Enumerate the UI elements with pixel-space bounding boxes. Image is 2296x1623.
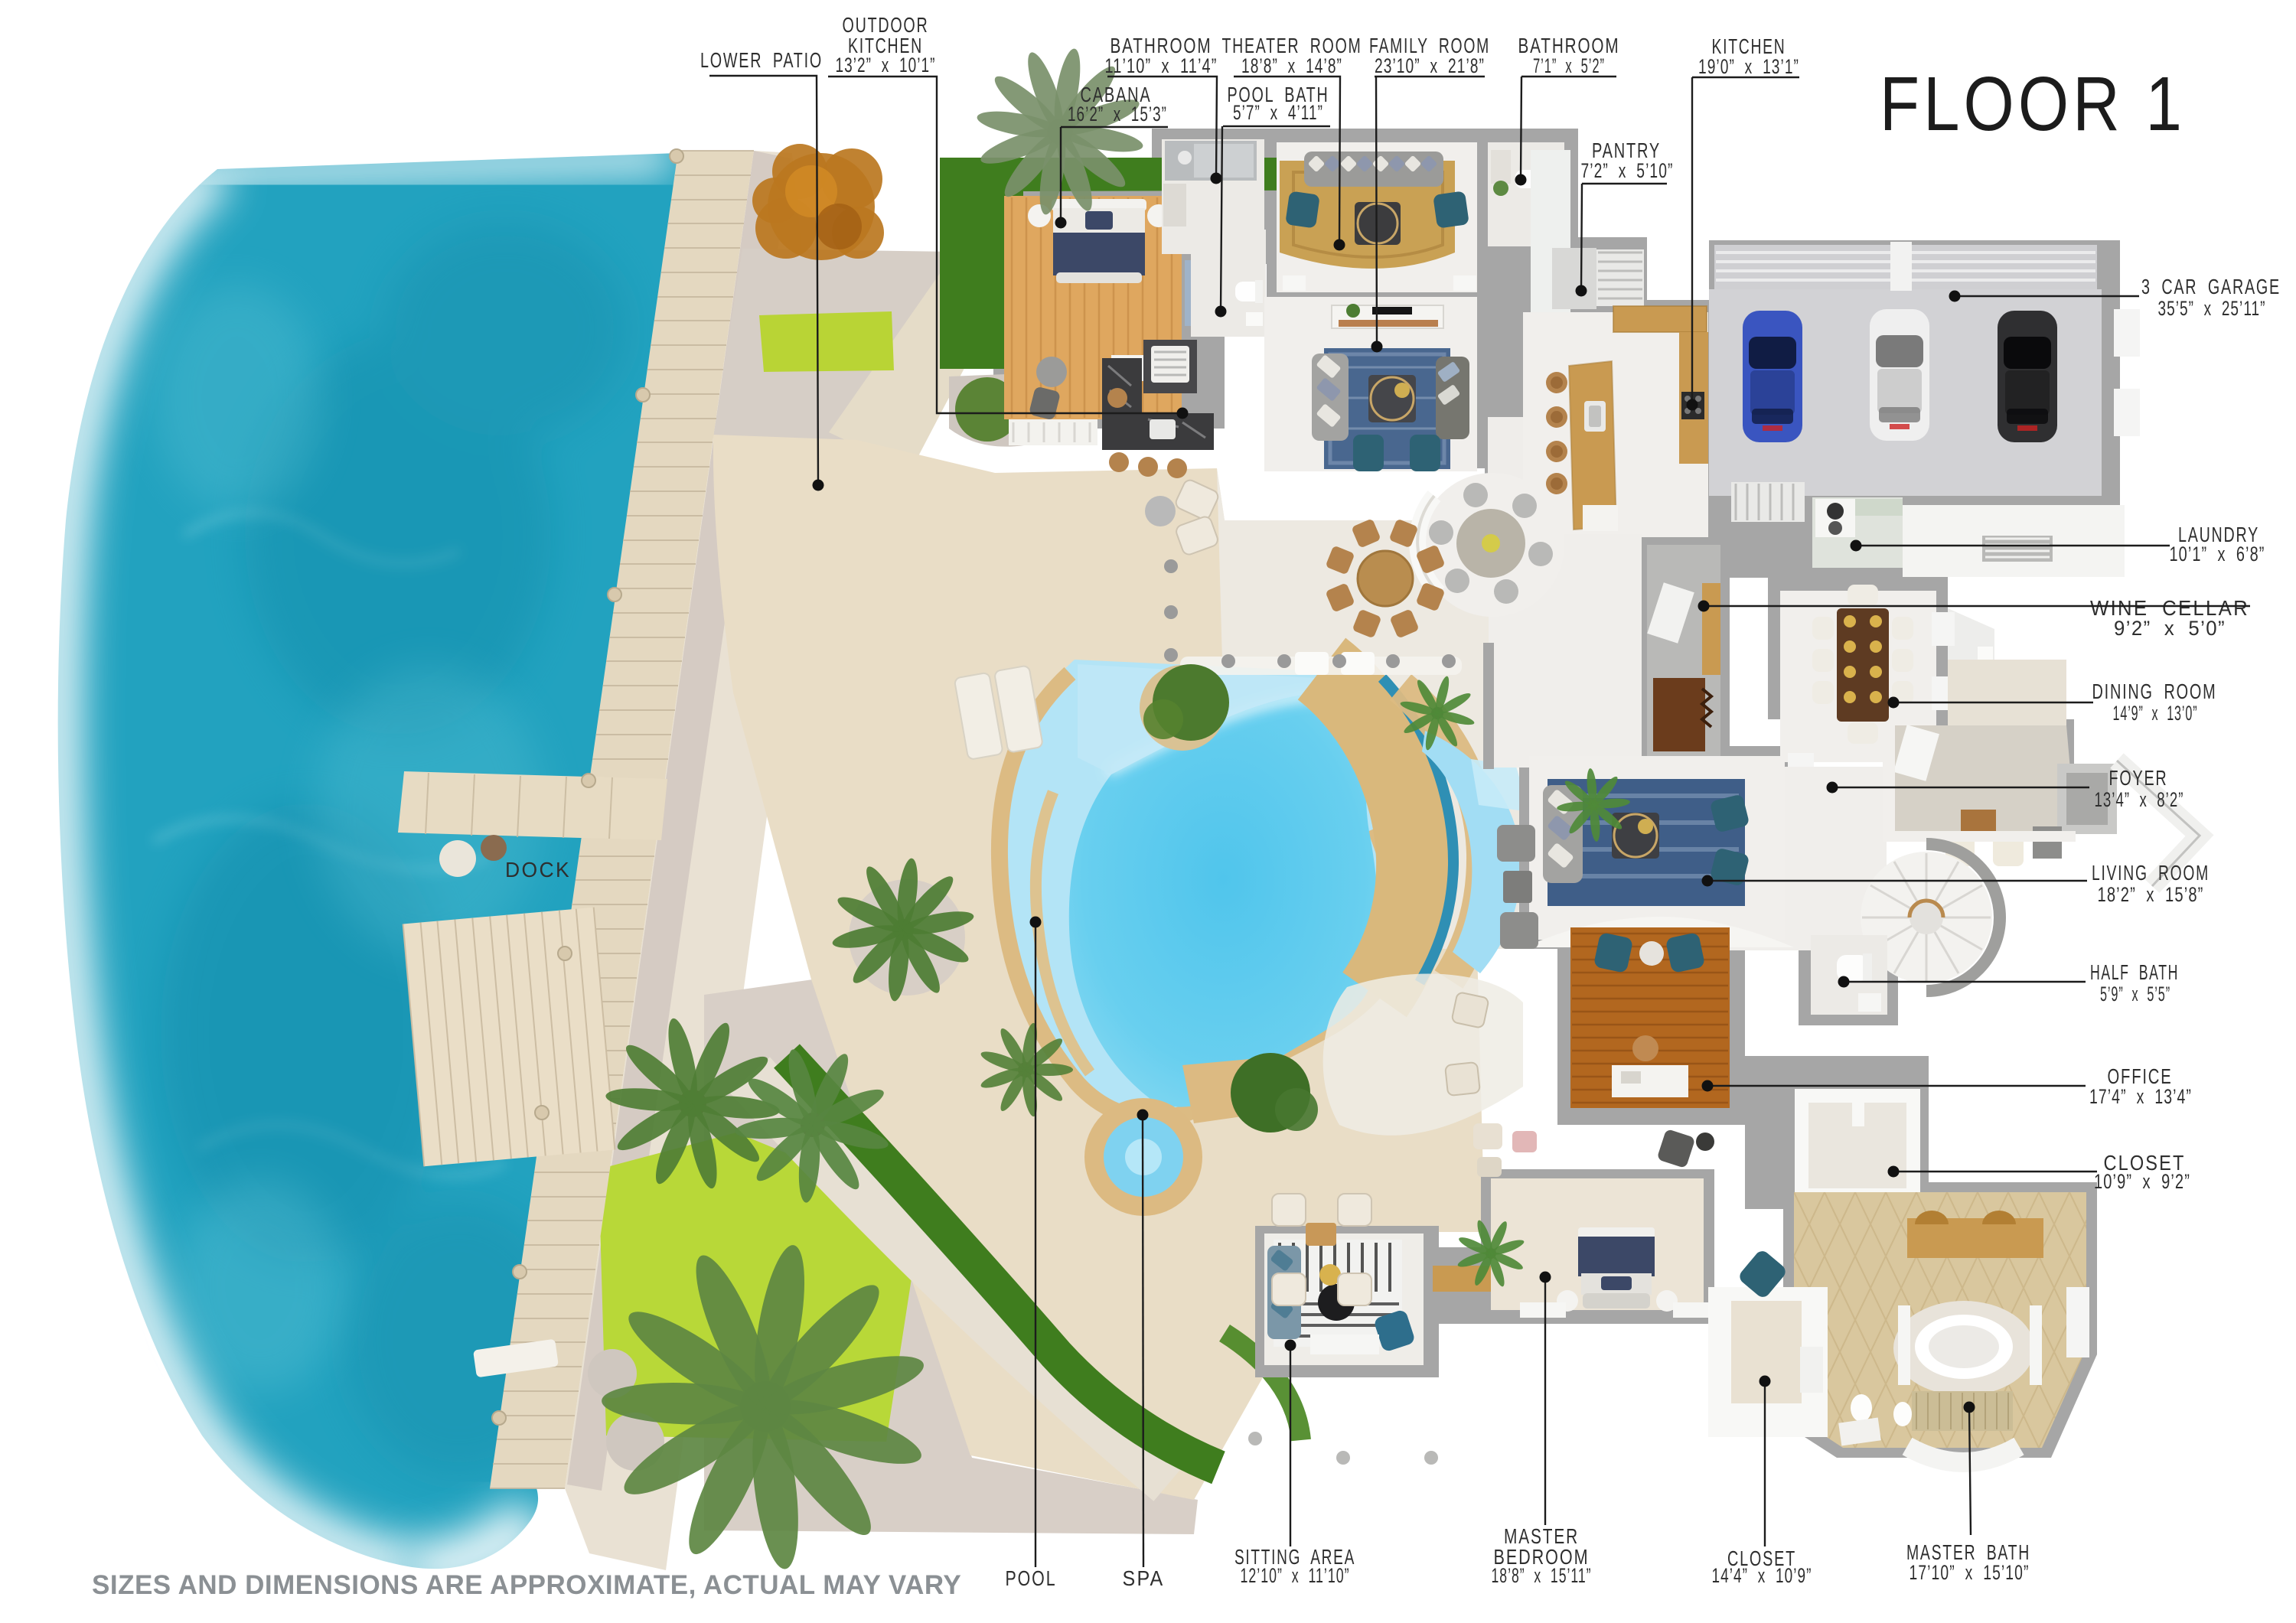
- svg-text:LIVING ROOM: LIVING ROOM: [2092, 861, 2210, 885]
- svg-text:5’9” x 5’5”: 5’9” x 5’5”: [2100, 983, 2170, 1005]
- svg-text:16’2” x 15’3”: 16’2” x 15’3”: [1068, 103, 1167, 125]
- svg-text:LOWER PATIO: LOWER PATIO: [700, 48, 823, 72]
- svg-text:11’10” x 11’4”: 11’10” x 11’4”: [1105, 54, 1218, 77]
- svg-text:12’10” x 11’10”: 12’10” x 11’10”: [1241, 1564, 1350, 1587]
- svg-text:10’9” x 9’2”: 10’9” x 9’2”: [2094, 1170, 2190, 1193]
- svg-text:3 CAR GARAGE: 3 CAR GARAGE: [2141, 275, 2281, 298]
- svg-text:17’10” x 15’10”: 17’10” x 15’10”: [1910, 1561, 2030, 1584]
- svg-text:DOCK: DOCK: [505, 858, 571, 882]
- svg-text:23’10” x 21’8”: 23’10” x 21’8”: [1375, 54, 1485, 77]
- svg-text:POOL: POOL: [1006, 1566, 1057, 1590]
- svg-text:SIZES AND DIMENSIONS ARE APPRO: SIZES AND DIMENSIONS ARE APPROXIMATE, AC…: [92, 1570, 961, 1600]
- svg-text:18’2” x 15’8”: 18’2” x 15’8”: [2098, 883, 2204, 906]
- svg-text:9’2” x 5’0”: 9’2” x 5’0”: [2114, 617, 2226, 640]
- svg-text:17’4” x 13’4”: 17’4” x 13’4”: [2089, 1085, 2192, 1108]
- svg-text:HALF BATH: HALF BATH: [2090, 960, 2179, 984]
- svg-text:10’1” x 6’8”: 10’1” x 6’8”: [2170, 543, 2265, 565]
- svg-text:FOYER: FOYER: [2109, 766, 2168, 790]
- svg-text:SPA: SPA: [1123, 1566, 1165, 1590]
- svg-text:DINING ROOM: DINING ROOM: [2092, 680, 2217, 703]
- svg-text:7’2” x 5’10”: 7’2” x 5’10”: [1581, 159, 1674, 182]
- svg-text:FLOOR 1: FLOOR 1: [1880, 61, 2186, 147]
- svg-text:18’8” x 14’8”: 18’8” x 14’8”: [1241, 54, 1342, 77]
- svg-text:13’4” x 8’2”: 13’4” x 8’2”: [2095, 788, 2184, 811]
- svg-text:14’9” x 13’0”: 14’9” x 13’0”: [2113, 702, 2198, 725]
- svg-text:5’7” x 4’11”: 5’7” x 4’11”: [1233, 101, 1323, 124]
- svg-text:19’0” x 13’1”: 19’0” x 13’1”: [1698, 55, 1799, 78]
- svg-text:14’4” x 10’9”: 14’4” x 10’9”: [1712, 1564, 1812, 1587]
- svg-text:18’8” x 15’11”: 18’8” x 15’11”: [1492, 1564, 1592, 1587]
- svg-text:13’2” x 10’1”: 13’2” x 10’1”: [836, 54, 936, 77]
- svg-text:7’1” x 5’2”: 7’1” x 5’2”: [1533, 54, 1605, 77]
- svg-text:35’5” x 25’11”: 35’5” x 25’11”: [2158, 297, 2266, 320]
